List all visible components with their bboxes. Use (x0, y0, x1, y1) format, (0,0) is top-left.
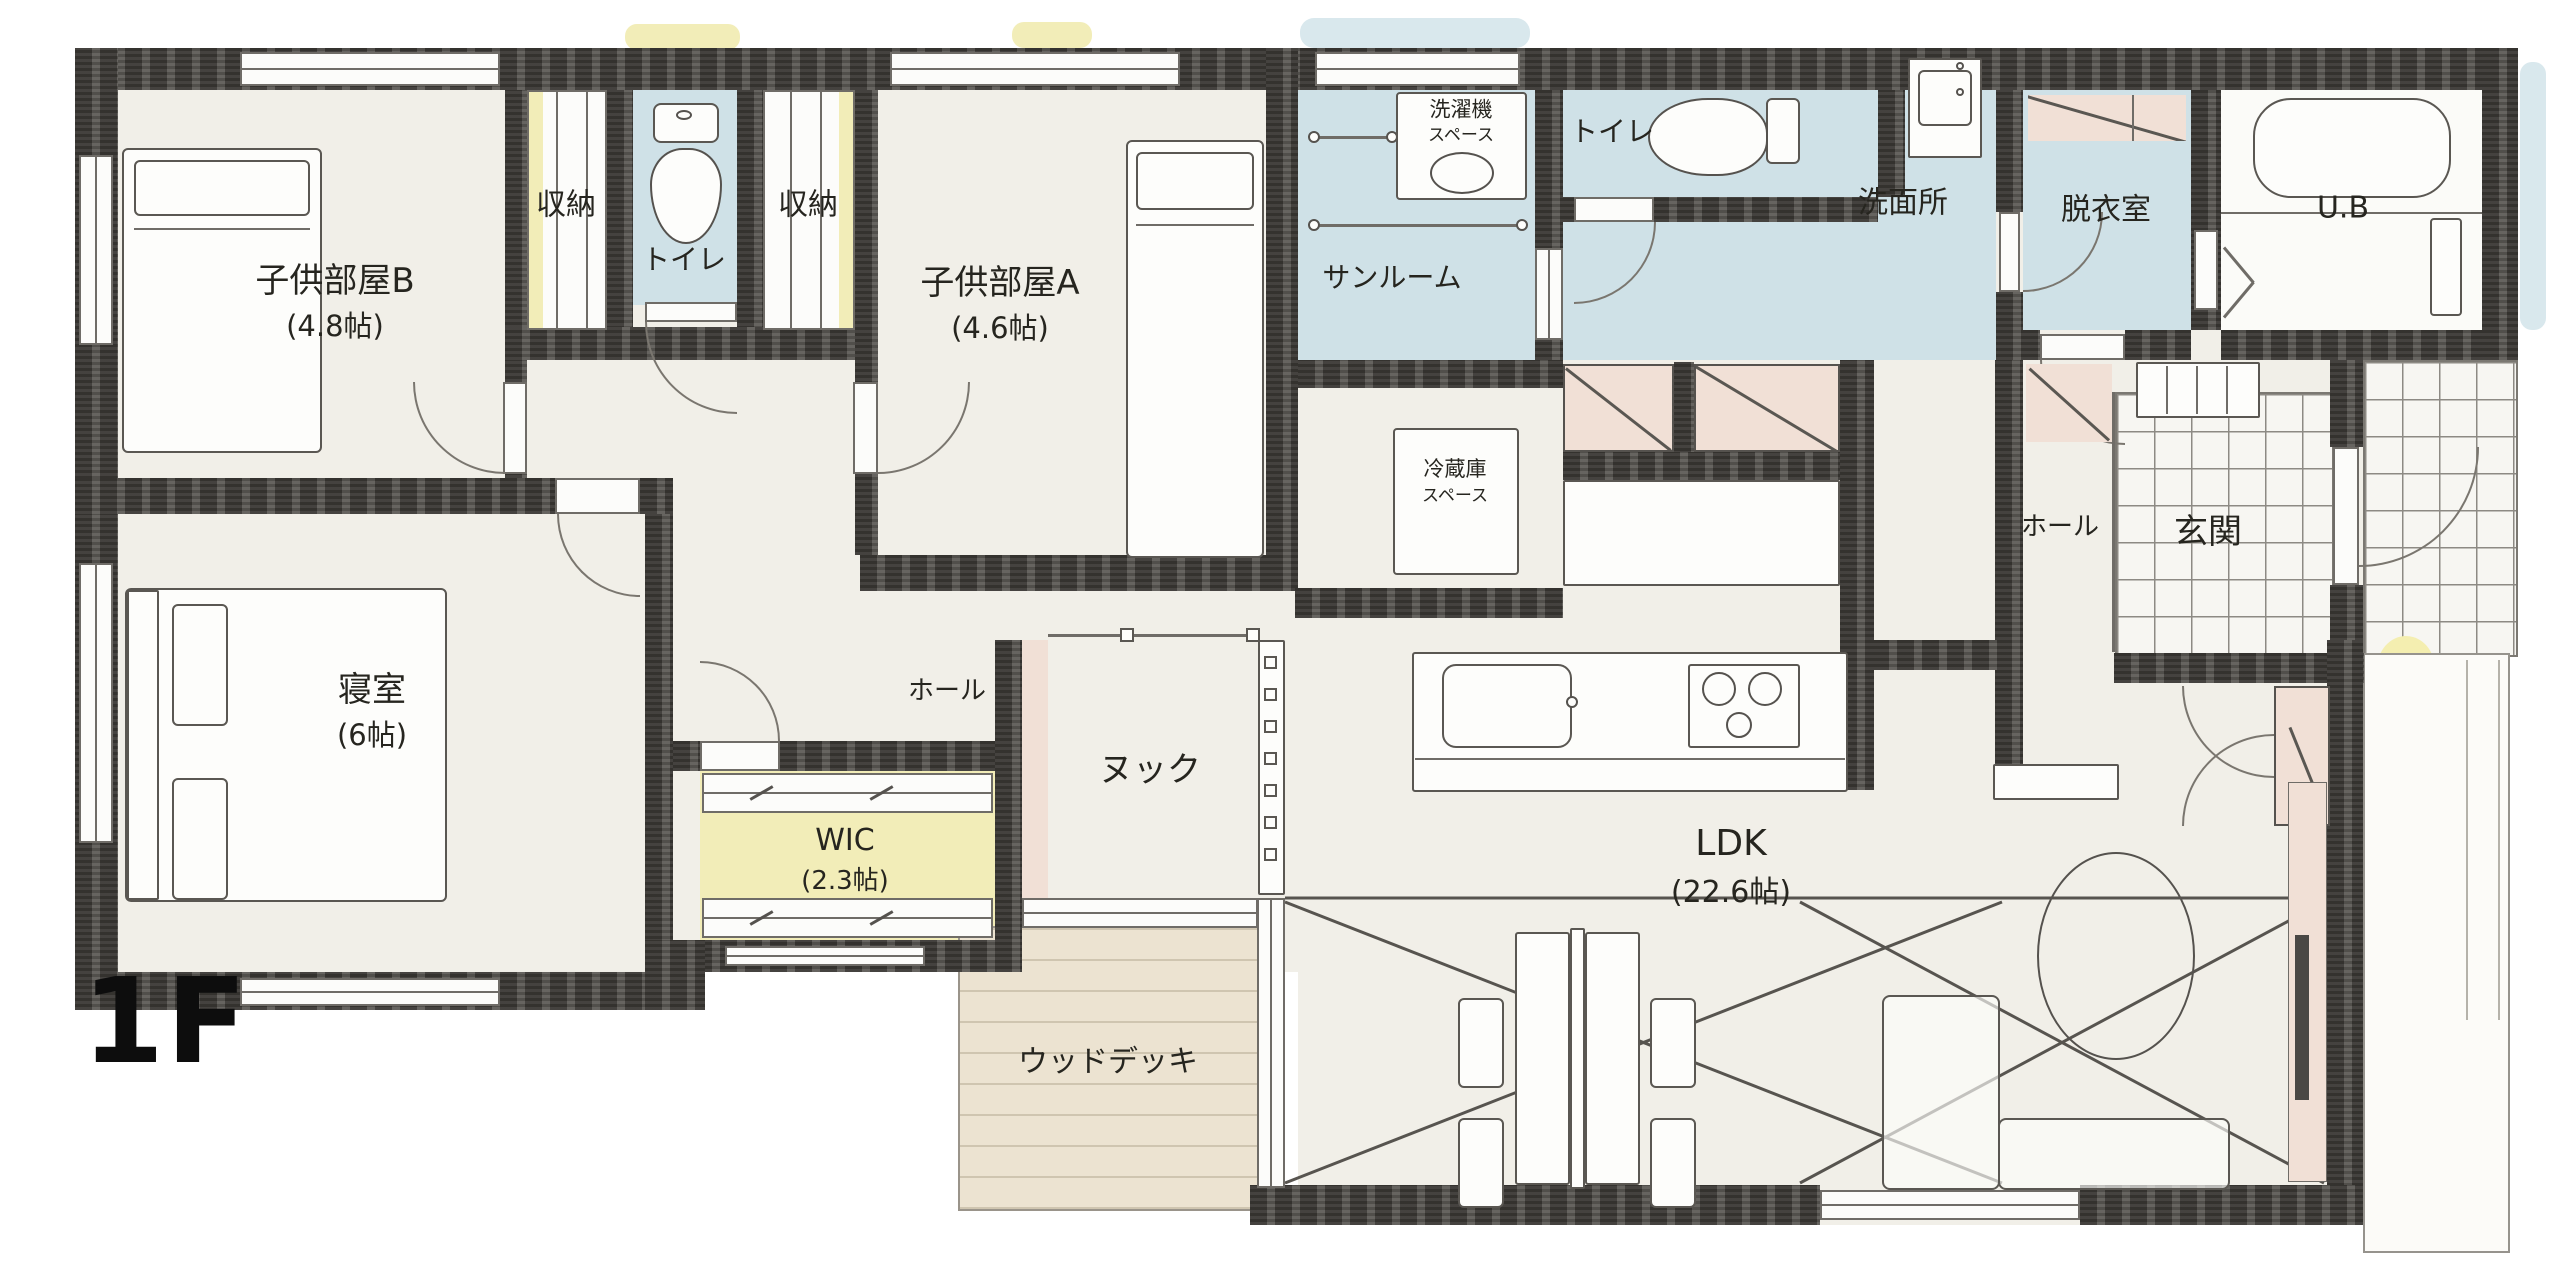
wall-bedroom-east (645, 514, 673, 972)
label-sunroom: サンルーム (1322, 260, 1461, 296)
label-washer-space: 洗濯機スペース (1428, 98, 1494, 147)
vanity-faucet-1 (1956, 62, 1964, 70)
drying-rod-2 (1316, 224, 1520, 227)
shoe-cabinet-line-3 (2226, 366, 2228, 414)
genkan-step-line (2112, 392, 2115, 652)
bed-kids-b-pillow (134, 160, 310, 216)
tv-set (2295, 935, 2309, 1100)
label-unit-bath: U.B (2317, 189, 2369, 228)
door-toilet-right (1574, 197, 1654, 222)
wall-kids-a-east (1266, 48, 1298, 591)
wall-toilet1-east (737, 90, 763, 332)
label-entrance: 玄関 (2174, 510, 2242, 554)
burner-3 (1726, 712, 1752, 738)
label-closet-right: 収納 (778, 186, 838, 225)
toilet-upper-tank (653, 103, 719, 143)
wall-toilet2-east (1878, 90, 1905, 197)
door-washroom-hall (2040, 334, 2125, 360)
wall-washroom-south-b (2125, 330, 2191, 360)
window-kids-a-top (890, 52, 1180, 86)
door-dressing (1999, 212, 2020, 292)
toilet-right-tank (1766, 98, 1800, 164)
dining-chair-1 (1458, 998, 1504, 1088)
bathtub (2253, 98, 2451, 198)
wall-toilet2-south-a (1563, 197, 1574, 222)
window-sunroom-top (1315, 52, 1520, 86)
label-hall-center: ホール (908, 675, 986, 709)
wall-wic-top-a (673, 741, 700, 771)
label-ldk: LDK(22.6帖) (1671, 821, 1791, 915)
window-bedroom-bottom (240, 978, 500, 1006)
shoe-cabinet-line-2 (2196, 366, 2198, 414)
toilet-upper-button (676, 110, 692, 120)
bench-cushion-1 (1264, 656, 1277, 669)
door-unit-bath (2194, 230, 2218, 310)
shoe-cabinet (2136, 362, 2260, 418)
rod2-end-left (1308, 219, 1320, 231)
drying-rod-1 (1316, 136, 1390, 139)
window-ldk-bottom (1820, 1190, 2080, 1220)
label-nook: ヌック (1099, 748, 1201, 792)
dining-table-right (1585, 932, 1640, 1185)
floor-level-label: 1F (82, 952, 249, 1090)
label-toilet-right: トイレ (1570, 114, 1654, 150)
wall-fridge-south (1295, 588, 1563, 618)
sliding-door-sunroom (1535, 248, 1563, 340)
wall-hall-entry-west (1995, 360, 2023, 772)
wall-washroom-dressing-a (1996, 90, 2023, 212)
wall-ub-south (2221, 330, 2518, 360)
wall-ldk-bottom-b (2080, 1185, 2363, 1225)
front-door (2333, 447, 2359, 585)
door-kids-a (853, 382, 878, 474)
label-closet-left: 収納 (536, 186, 596, 225)
dressing-closet (2028, 95, 2186, 141)
window-kids-b-top (240, 52, 500, 86)
entry-step (1993, 764, 2119, 800)
label-kids-room-a: 子供部屋A(4.6帖) (920, 261, 1079, 349)
sofa-left-arm (1882, 995, 2000, 1190)
bed-kids-b-line (134, 228, 310, 230)
service-closet-a (1563, 364, 1674, 452)
label-hall-entry: ホール (2021, 511, 2099, 545)
hall-entry-closet (2026, 364, 2112, 442)
service-closet-b (1694, 364, 1840, 452)
bench-cushion-4 (1264, 752, 1277, 765)
bench-cushion-7 (1264, 848, 1277, 861)
bench-cushion-6 (1264, 816, 1277, 829)
bench-cushion-3 (1264, 720, 1277, 733)
dining-chair-2 (1458, 1118, 1504, 1208)
bench-cushion-5 (1264, 784, 1277, 797)
burner-1 (1702, 672, 1736, 706)
dressing-closet-divider (2132, 95, 2134, 141)
nook-top-line (1048, 634, 1258, 637)
toilet-right-bowl (1648, 98, 1768, 176)
door-bedroom (555, 478, 640, 514)
label-kids-room-b: 子供部屋B(4.8帖) (255, 259, 414, 347)
wall-kids-a-west (855, 90, 878, 555)
wall-front-a (2330, 360, 2363, 447)
wall-ldk-north-stub (1872, 640, 1998, 670)
bed-master-pillow-2 (172, 778, 228, 900)
built-in-counter (1563, 480, 1840, 586)
kitchen-sink (1442, 664, 1572, 748)
rod2-end-right (1516, 219, 1528, 231)
dining-chair-4 (1650, 1118, 1696, 1208)
sliding-door-deck (1257, 898, 1285, 1188)
wall-toilet2-south-b (1652, 197, 1878, 222)
wic-hanger-bottom (702, 898, 993, 938)
vanity-faucet-2 (1956, 88, 1964, 96)
window-kids-b-left (79, 155, 113, 345)
wall-sunroom-bottom (1298, 360, 1563, 388)
vanity-bowl (1918, 70, 1972, 126)
dining-table-post (1570, 928, 1585, 1189)
washer-drum (1430, 152, 1494, 194)
label-fridge-space: 冷蔵庫スペース (1422, 457, 1488, 507)
burner-2 (1748, 672, 1782, 706)
floor-plan: 子供部屋B(4.8帖) 収納 トイレ 収納 子供部屋A(4.6帖) サンルーム … (0, 0, 2560, 1269)
kitchen-front-line (1415, 758, 1845, 760)
wall-washroom-south-a (1996, 330, 2040, 360)
door-toilet-upper (645, 302, 737, 322)
wall-kids-a-bottom (860, 555, 1298, 591)
plant-symbol (2037, 852, 2195, 1060)
dining-table-left (1515, 932, 1570, 1185)
label-toilet-upper: トイレ (642, 242, 726, 278)
label-washroom: 洗面所 (1858, 184, 1948, 223)
wall-ub-east (2482, 48, 2518, 360)
wall-ldk-bottom-a (1250, 1185, 1820, 1225)
label-bedroom: 寝室(6帖) (337, 668, 407, 756)
window-bedroom-left (79, 563, 113, 843)
sofa-seat (1998, 1118, 2230, 1190)
bed-master-pillow-1 (172, 604, 228, 726)
label-wic: WIC(2.3帖) (801, 821, 889, 899)
bed-master-headboard (127, 590, 159, 900)
label-dressing-room: 脱衣室 (2061, 191, 2151, 230)
wall-bedroom-top-stub (640, 478, 673, 514)
closet-right-accent (839, 92, 853, 328)
label-wood-deck: ウッドデッキ (1018, 1043, 1198, 1082)
bench-cushion-2 (1264, 688, 1277, 701)
door-kids-b (503, 382, 527, 474)
rod1-end-left (1308, 131, 1320, 143)
nook-post-1 (1120, 628, 1134, 642)
kitchen-faucet (1566, 696, 1578, 708)
bed-kids-a-line (1136, 224, 1254, 226)
wall-service-closets-bottom (1563, 452, 1840, 480)
wall-wic-top-b (780, 741, 995, 771)
wall-service-mid (1674, 362, 1694, 454)
door-wic (700, 741, 780, 771)
window-nook-deck (1022, 898, 1258, 928)
wall-ldk-east (2327, 640, 2363, 1225)
wall-kids-b-bottom (75, 478, 555, 514)
window-wic-bottom (725, 946, 925, 966)
wic-hanger-top (702, 773, 993, 813)
dining-chair-3 (1650, 998, 1696, 1088)
wall-wic-east (995, 640, 1022, 972)
ub-counter (2430, 218, 2462, 316)
wall-toilet1-west (607, 90, 633, 332)
shoe-cabinet-line-1 (2166, 366, 2168, 414)
wall-jog-connector (645, 940, 705, 1010)
bed-kids-a-pillow (1136, 152, 1254, 210)
